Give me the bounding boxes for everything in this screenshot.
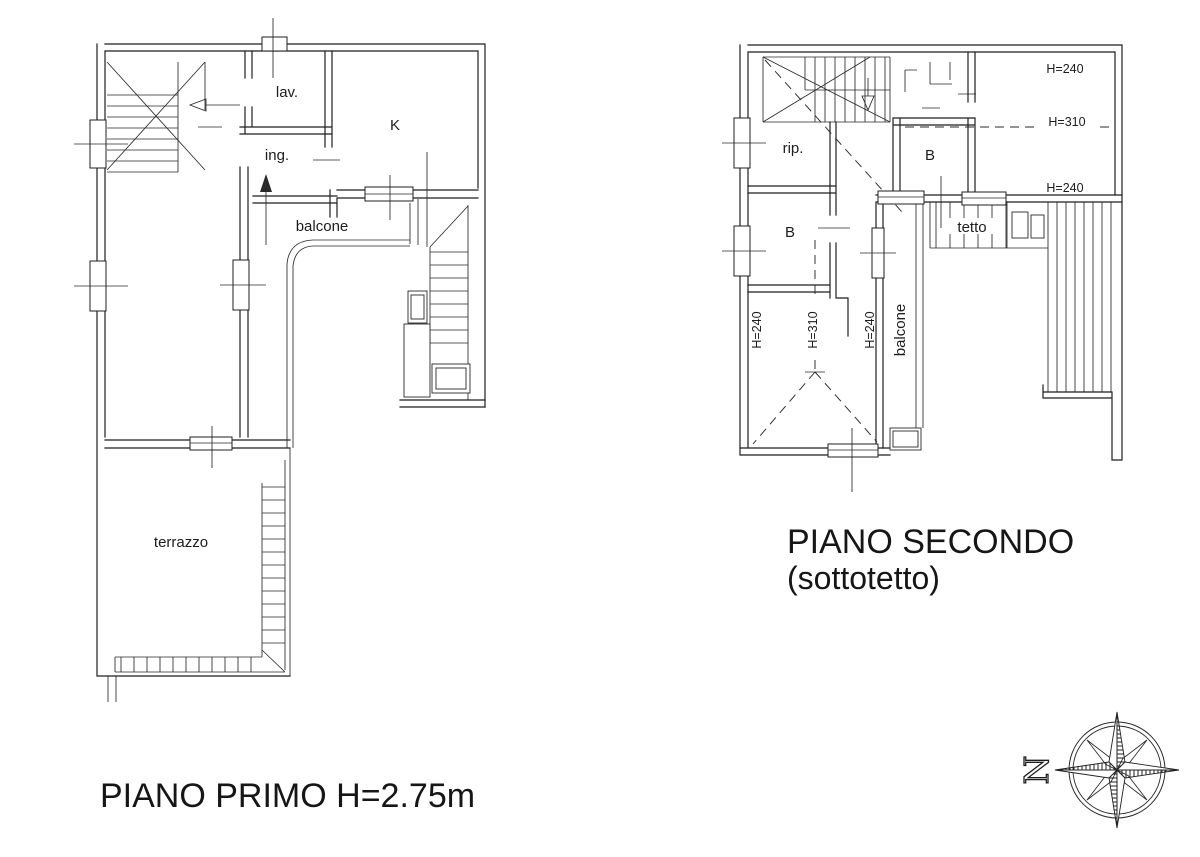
room-label-kitchen: K xyxy=(390,117,400,134)
floor1-balcony-rail xyxy=(287,240,410,448)
floor2-outer-walls xyxy=(740,45,1122,460)
north-label: N xyxy=(1017,756,1056,785)
floorplan-sheet: lav. K ing. balcone terrazzo xyxy=(0,0,1200,857)
window xyxy=(828,444,878,457)
room-label-terrazzo: terrazzo xyxy=(154,534,208,551)
landing-fixture xyxy=(404,324,430,397)
chimney xyxy=(1031,215,1044,238)
room-label-balcone2: balcone xyxy=(892,304,909,357)
floorplan-drawing: lav. K ing. balcone terrazzo xyxy=(0,0,1200,857)
floor2-windows xyxy=(722,118,1006,492)
floor1-plan: lav. K ing. balcone terrazzo xyxy=(74,18,485,702)
room-label-lav: lav. xyxy=(276,84,298,101)
floor2-subtitle: (sottotetto) xyxy=(787,560,940,596)
floor2-stair xyxy=(763,57,890,122)
room-label-bath-lower: B xyxy=(785,224,795,241)
stair-direction-arrow xyxy=(862,96,874,110)
floor1-stair-topleft xyxy=(107,62,240,172)
room-label-ing: ing. xyxy=(265,147,289,164)
floor1-windows xyxy=(74,18,413,468)
floor1-entrance-arrow xyxy=(260,174,272,245)
room-label-bath-upper: B xyxy=(925,147,935,164)
stair-direction-arrow xyxy=(190,99,206,111)
floor1-terrazzo xyxy=(105,440,290,702)
window xyxy=(962,192,1006,205)
height-label-low: H=240 xyxy=(1046,181,1083,195)
height-label-top: H=240 xyxy=(1046,62,1083,76)
floor2-title: PIANO SECONDO xyxy=(787,523,1074,561)
floor2-plan: rip. B B tetto H=240 H=310 H=240 H=240 H… xyxy=(722,45,1122,492)
room-height-left: H=240 xyxy=(750,311,764,348)
window xyxy=(878,191,924,204)
floor1-title: PIANO PRIMO H=2.75m xyxy=(100,777,475,815)
room-height-right: H=240 xyxy=(863,311,877,348)
bathroom-fixtures xyxy=(905,62,976,108)
room-label-tetto: tetto xyxy=(957,219,986,236)
room-height-mid: H=310 xyxy=(806,311,820,348)
room-label-balcone: balcone xyxy=(296,218,349,235)
chimney xyxy=(1012,212,1028,238)
floor2-roof-band xyxy=(1048,202,1111,392)
room-label-rip: rip. xyxy=(783,140,804,157)
height-label-mid: H=310 xyxy=(1048,115,1085,129)
compass-rose: N xyxy=(1017,712,1179,828)
window xyxy=(190,437,232,450)
roof-vent xyxy=(262,37,287,51)
